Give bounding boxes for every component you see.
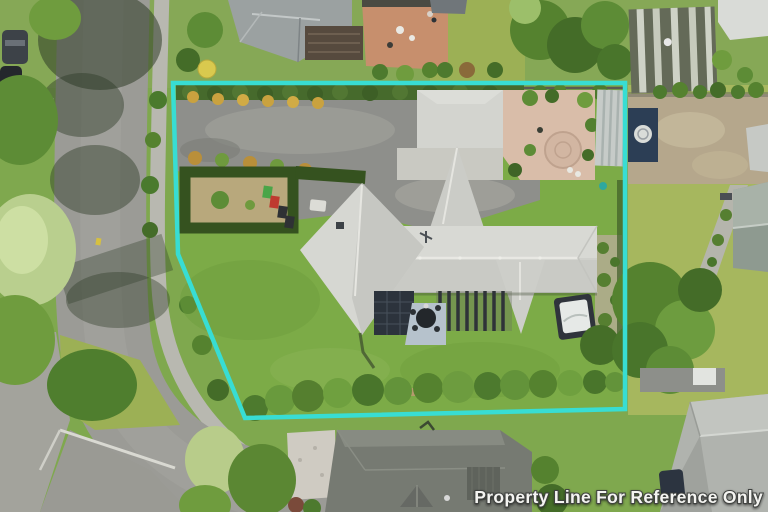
garden-shed-roof xyxy=(595,89,628,166)
teal-garden-item xyxy=(599,182,607,190)
paved-patio xyxy=(497,89,599,180)
watermark-label: Property Line For Reference Only xyxy=(474,487,763,507)
aerial-photo-viewport: Property Line For Reference Only xyxy=(0,0,768,512)
outdoor-table xyxy=(416,308,436,328)
parked-trailer xyxy=(309,199,326,212)
top-right-neighbor xyxy=(628,0,768,184)
chimney xyxy=(336,222,344,229)
striped-shed-roof xyxy=(629,6,718,93)
aerial-photo: Property Line For Reference Only xyxy=(0,0,768,512)
yellow-umbrella xyxy=(198,60,216,78)
